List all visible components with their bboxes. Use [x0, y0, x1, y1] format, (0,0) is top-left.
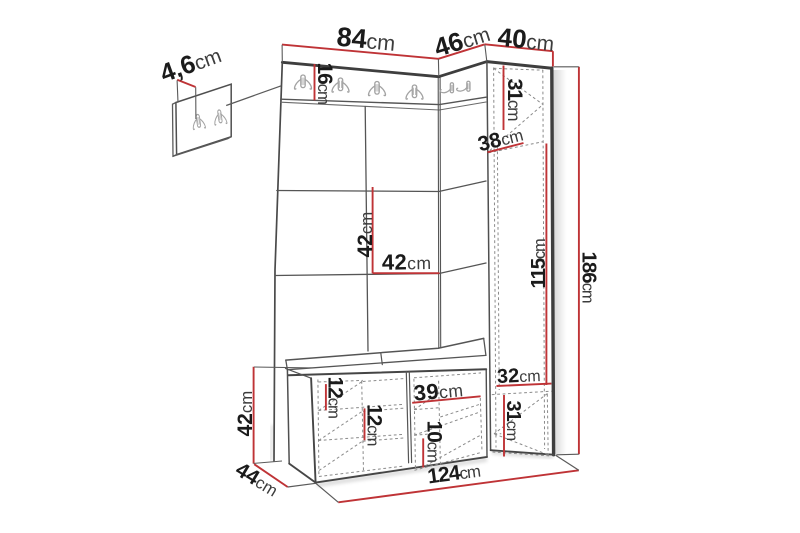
svg-text:44cm: 44cm	[231, 458, 282, 501]
svg-text:42cm: 42cm	[354, 212, 377, 258]
svg-text:38cm: 38cm	[475, 123, 525, 157]
svg-text:186cm: 186cm	[577, 252, 600, 303]
svg-text:16cm: 16cm	[313, 63, 336, 104]
svg-text:32cm: 32cm	[497, 364, 541, 388]
svg-text:42cm: 42cm	[234, 391, 257, 437]
svg-text:115cm: 115cm	[527, 239, 550, 288]
svg-text:4,6cm: 4,6cm	[156, 40, 224, 88]
svg-text:31cm: 31cm	[502, 401, 524, 441]
svg-text:46cm: 46cm	[430, 17, 493, 62]
svg-text:40cm: 40cm	[496, 22, 555, 57]
svg-text:10cm: 10cm	[422, 421, 445, 462]
svg-text:12cm: 12cm	[324, 377, 347, 418]
svg-text:12cm: 12cm	[362, 404, 385, 445]
svg-text:31cm: 31cm	[503, 79, 527, 122]
svg-text:84cm: 84cm	[335, 22, 396, 57]
svg-text:42cm: 42cm	[382, 249, 432, 275]
svg-text:39cm: 39cm	[413, 376, 465, 406]
